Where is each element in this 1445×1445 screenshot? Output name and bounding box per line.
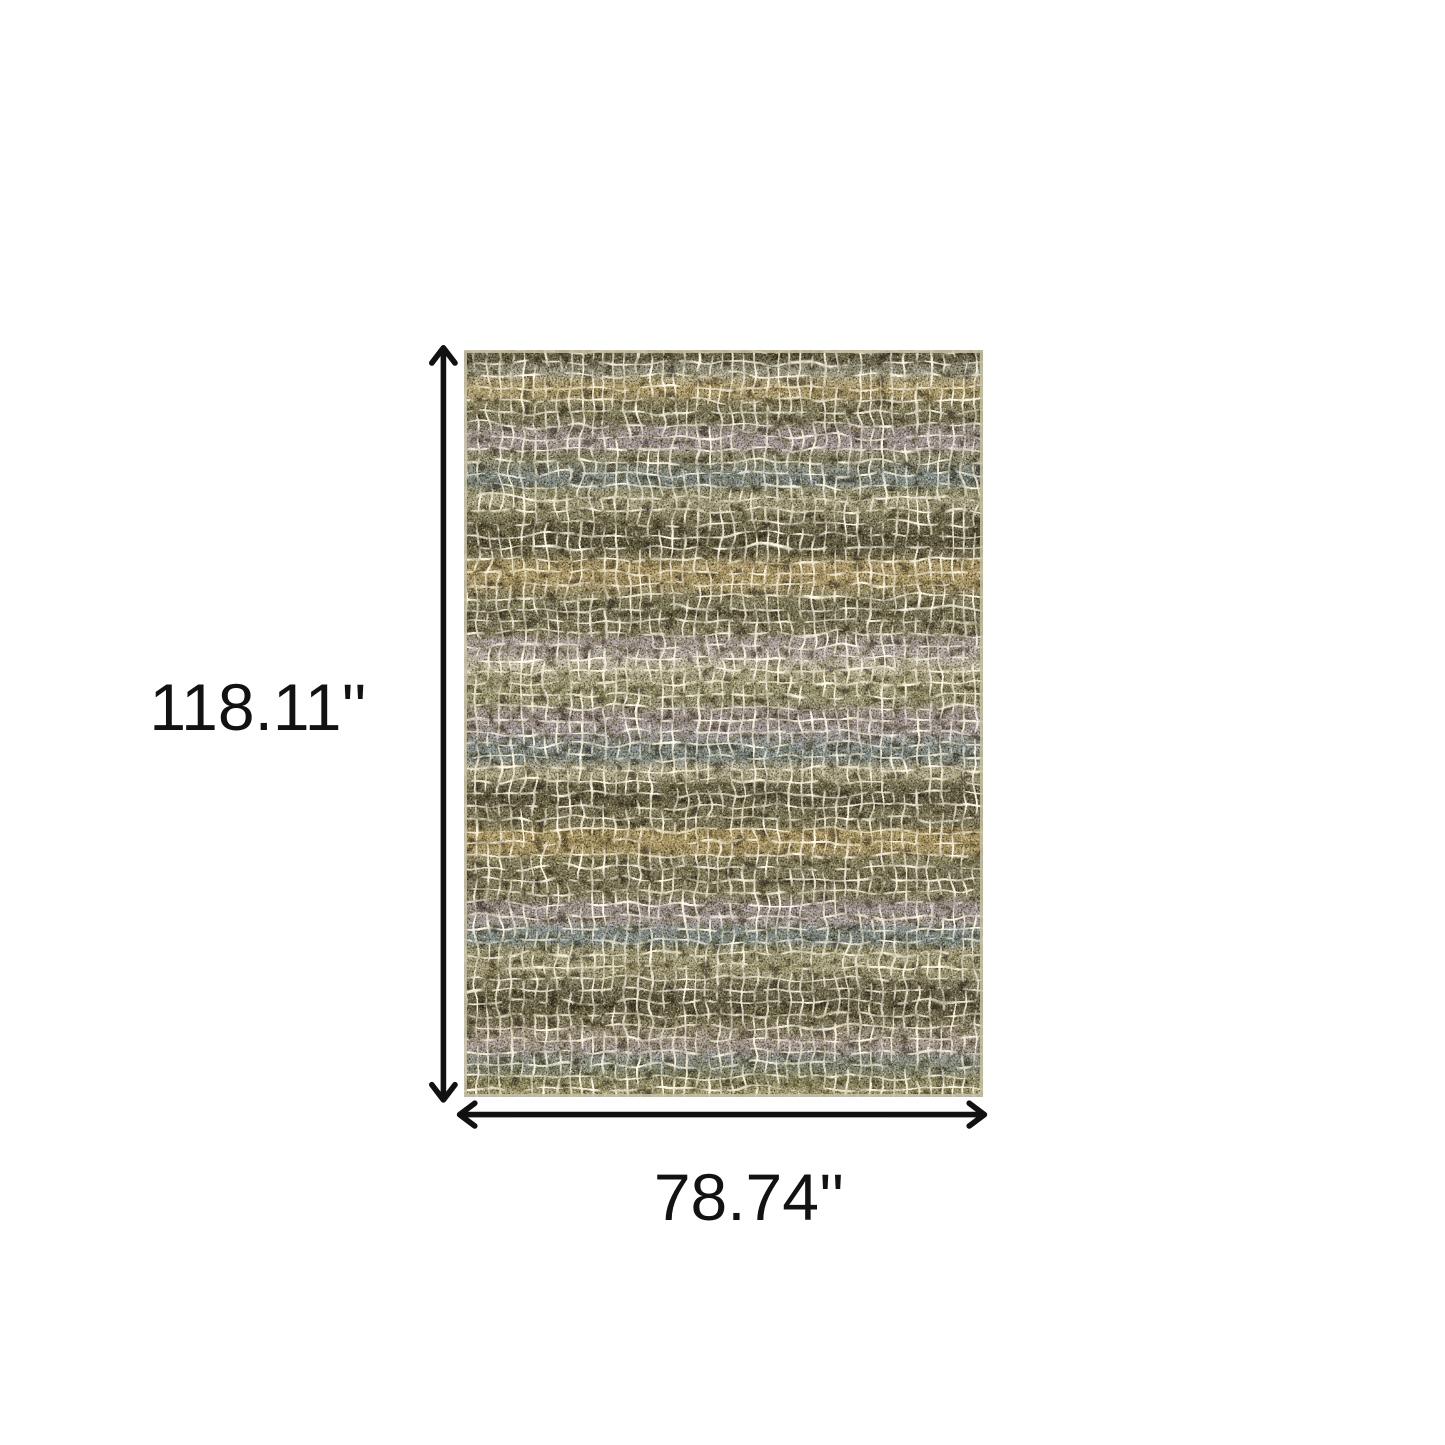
- svg-text:78.74'': 78.74'': [654, 1160, 844, 1234]
- svg-text:118.11'': 118.11'': [149, 670, 366, 744]
